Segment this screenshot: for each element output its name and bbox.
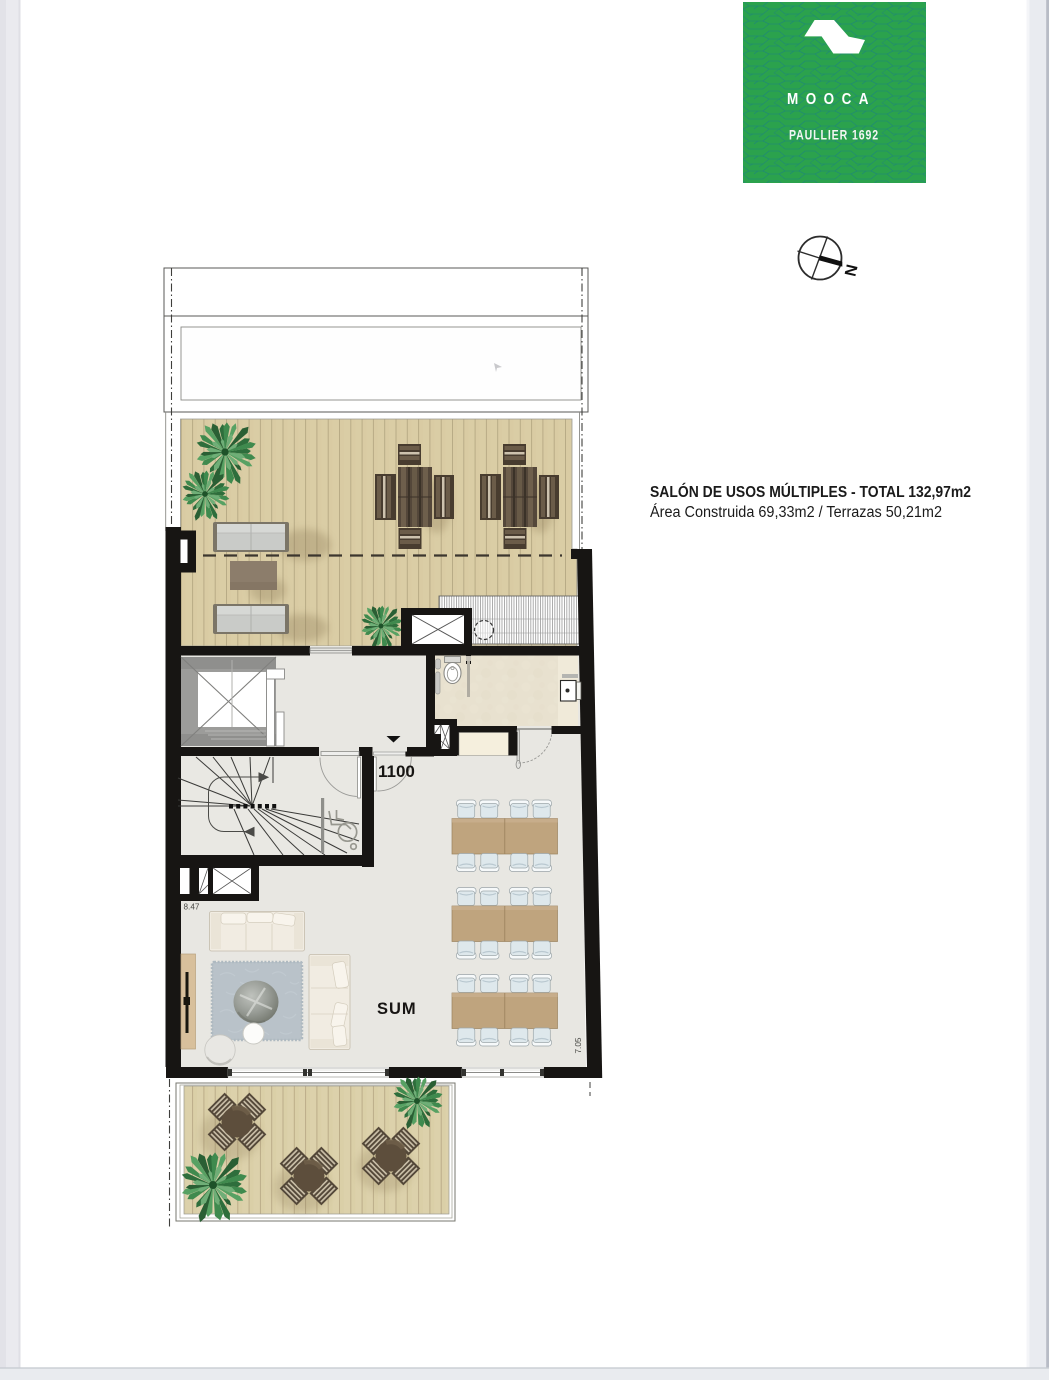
svg-text:8.47: 8.47 — [184, 903, 200, 912]
svg-text:7.05: 7.05 — [574, 1037, 583, 1053]
svg-text:Área Construida 69,33m2 / Terr: Área Construida 69,33m2 / Terrazas 50,21… — [650, 504, 942, 521]
svg-text:MOOCA: MOOCA — [787, 91, 876, 108]
svg-text:SALÓN DE USOS MÚLTIPLES - TOTA: SALÓN DE USOS MÚLTIPLES - TOTAL 132,97m2 — [650, 482, 971, 501]
svg-text:1100: 1100 — [378, 762, 415, 781]
svg-text:SUM: SUM — [377, 1000, 417, 1018]
svg-text:PAULLIER 1692: PAULLIER 1692 — [789, 127, 879, 143]
